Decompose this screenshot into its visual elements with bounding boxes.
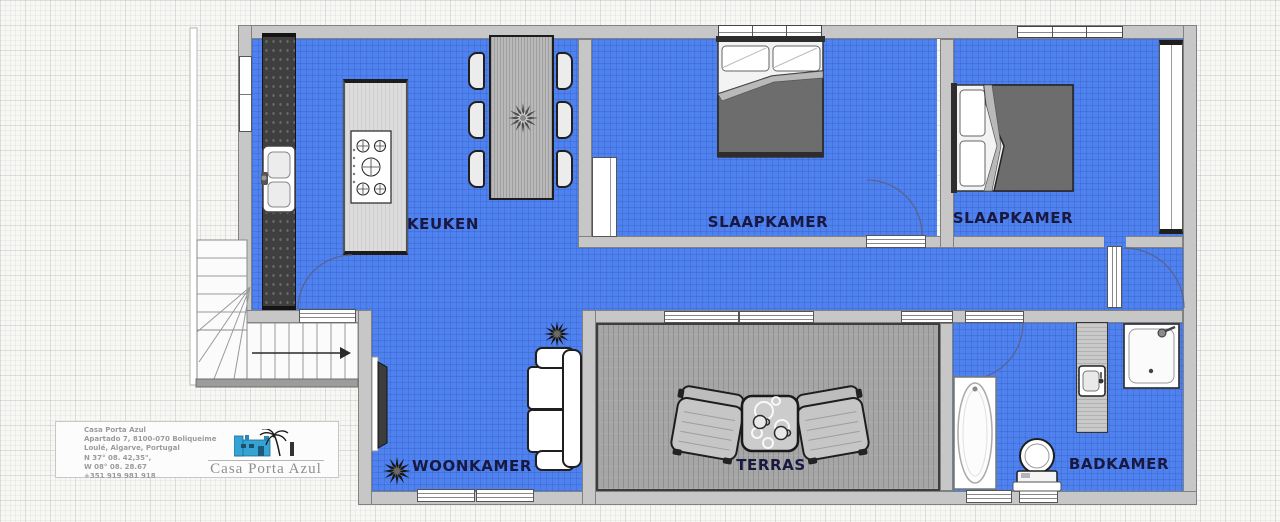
floorplan-canvas: KEUKEN SLAAPKAMER SLAAPKAMER WOONKAMER T… <box>0 0 1280 522</box>
dining-chair-5 <box>556 101 573 139</box>
dining-chair-3 <box>468 150 485 188</box>
bedroom2-door-leaf <box>1107 246 1122 308</box>
label-bedroom-1: SLAAPKAMER <box>708 213 829 231</box>
address-line: Casa Porta Azul <box>84 426 216 435</box>
entry-door-sill <box>299 309 356 323</box>
bedroom2-side-window <box>1159 40 1183 234</box>
address-line: W 08° 08. 28.67 <box>84 463 216 472</box>
kitchen-window <box>239 56 252 132</box>
bathroom-door-sill <box>965 311 1024 323</box>
wall-bedroom1-left <box>578 39 592 248</box>
terrace-slider-2 <box>739 311 814 323</box>
label-kitchen: KEUKEN <box>407 215 479 233</box>
label-terrace: TERRAS <box>736 456 806 474</box>
bedroom1-door-sill <box>866 235 926 248</box>
bedroom1-window <box>718 25 822 39</box>
label-bedroom-2: SLAAPKAMER <box>953 209 1074 227</box>
logo-brand-text: Casa Porta Azul <box>206 461 326 478</box>
hall-window-right <box>901 311 953 323</box>
dining-chair-2 <box>468 101 485 139</box>
sofa-seat-1 <box>527 366 567 410</box>
logo-house-palm-icon <box>234 429 296 459</box>
dining-chair-1 <box>468 52 485 90</box>
dining-chair-4 <box>556 52 573 90</box>
dining-chair-6 <box>556 150 573 188</box>
sofa-seat-2 <box>527 409 567 453</box>
wall-living-left <box>358 310 372 505</box>
kitchen-counter <box>262 33 296 310</box>
wall-bathroom-left <box>940 323 953 491</box>
bathroom-window-2 <box>1019 490 1058 503</box>
living-window-1 <box>417 489 475 502</box>
bedroom2-top-window <box>1017 26 1123 38</box>
bedroom1-wardrobe <box>592 157 617 237</box>
bathroom-window-1 <box>966 490 1012 503</box>
label-bathroom: BADKAMER <box>1069 455 1169 473</box>
sofa-backrest <box>562 349 582 468</box>
label-living-room: WOONKAMER <box>412 457 532 475</box>
address-line: Apartado 7, 8100-070 Boliqueime <box>84 435 216 444</box>
address-block: Casa Porta Azul Apartado 7, 8100-070 Bol… <box>84 426 216 481</box>
address-line: +351 919 981 918 <box>84 472 216 481</box>
living-window-2 <box>476 489 534 502</box>
dining-table <box>489 35 554 200</box>
bathroom-vanity <box>1076 322 1108 433</box>
logo-card: Casa Porta Azul Apartado 7, 8100-070 Bol… <box>55 421 339 478</box>
floor-hallway <box>252 248 1183 310</box>
terrace-slider-1 <box>664 311 739 323</box>
address-line: Loulé, Algarve, Portugal <box>84 444 216 453</box>
address-line: N 37° 08. 42,35", <box>84 454 216 463</box>
floor-bedroom-1 <box>592 39 937 236</box>
wall-right <box>1183 25 1197 505</box>
kitchen-island <box>343 79 408 255</box>
wall-living-terrace <box>582 310 596 505</box>
floor-bedroom-2 <box>954 39 1183 236</box>
